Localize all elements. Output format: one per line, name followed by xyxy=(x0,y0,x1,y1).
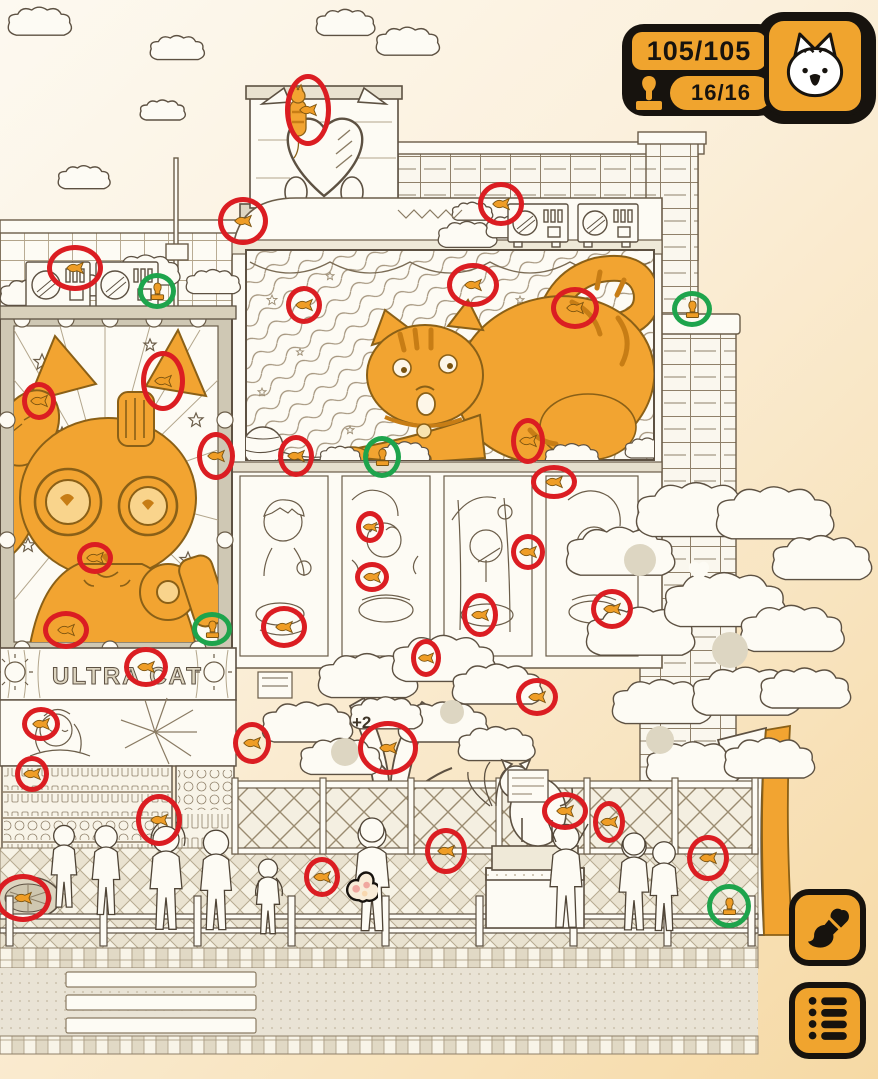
stamp-icon xyxy=(634,74,664,112)
list-icon xyxy=(805,994,851,1047)
scene-illustration[interactable]: +2 ULTRA CAT xyxy=(0,0,878,1079)
item-list-button[interactable] xyxy=(789,982,866,1059)
paw-cursor-icon xyxy=(340,866,378,906)
paintbrush-icon xyxy=(802,899,854,956)
tree-counter-label: +2 xyxy=(352,713,371,732)
road-stripes xyxy=(66,972,256,1033)
left-billboard xyxy=(0,311,233,657)
stamp-counter: 16/16 xyxy=(670,76,772,110)
tabby-cat-billboard xyxy=(243,250,670,482)
cat-face-icon xyxy=(764,16,866,116)
shop-front: ULTRA CAT xyxy=(0,648,236,862)
found-counter: 105/105 xyxy=(632,32,766,70)
hud-counter-badge: 105/105 16/16 xyxy=(616,10,878,124)
paint-mode-button[interactable] xyxy=(789,889,866,966)
game-stage: +2 ULTRA CAT xyxy=(0,0,878,1079)
lattice-fence xyxy=(232,778,758,854)
shop-sign-text: ULTRA CAT xyxy=(52,663,203,690)
